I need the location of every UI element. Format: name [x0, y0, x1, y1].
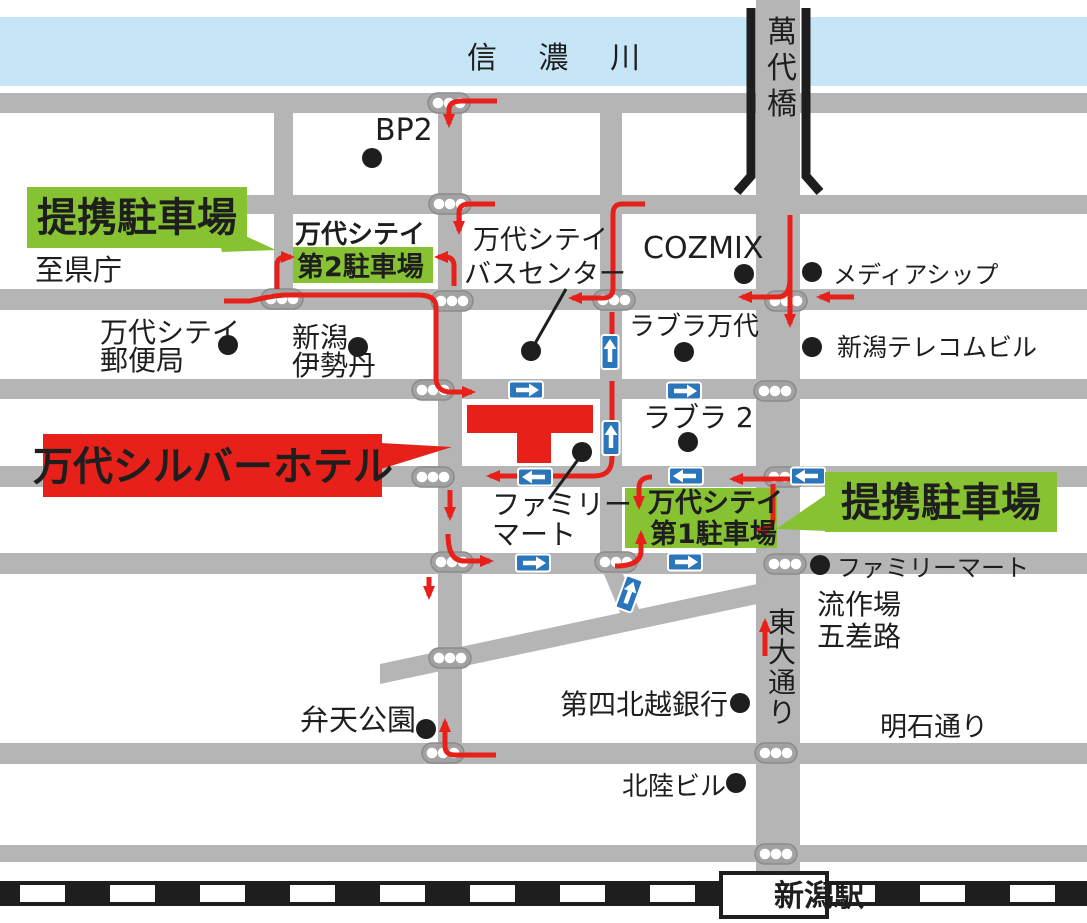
poi-dot-niigata-telecom: [802, 337, 822, 357]
railway-stripe: [1010, 885, 1055, 902]
traffic-light-lamp: [600, 557, 611, 568]
parking-no1-line1: 万代シテイ: [648, 488, 783, 519]
gosaro-label-2: 五差路: [817, 620, 901, 653]
poi-dot-family-mart-east: [810, 555, 830, 575]
railway-stripe: [650, 885, 695, 902]
road-h8: [0, 845, 1087, 862]
poi-dot-hokuriku-bldg: [726, 773, 746, 793]
shinano-river: [810, 17, 1087, 86]
traffic-light-icon: [754, 381, 796, 401]
poi-dot-media-ship: [802, 262, 822, 282]
traffic-light-lamp: [436, 557, 447, 568]
access-map-page: 信 濃 川BP2至県庁万代シテイバスセンターCOZMIXメディアシップ万代シテイ…: [0, 0, 1087, 923]
traffic-light-lamp: [771, 849, 782, 860]
traffic-light-lamp: [417, 385, 428, 396]
poi-label-isetan-2: 伊勢丹: [292, 349, 376, 382]
poi-dot-daishi-bank: [730, 693, 750, 713]
river-label: 信 濃 川: [467, 41, 656, 76]
traffic-light-lamp: [769, 559, 780, 570]
traffic-light-lamp: [791, 559, 802, 570]
partner-parking-label-right: 提携駐車場: [841, 480, 1041, 526]
traffic-light-lamp: [445, 199, 456, 210]
poi-label-cozmix: COZMIX: [643, 231, 763, 266]
hotel-building: [467, 405, 593, 433]
traffic-light-lamp: [427, 748, 438, 759]
poi-label-bus-center-1: 万代シテイ: [473, 225, 608, 256]
traffic-light-icon: [764, 554, 806, 574]
traffic-light-icon: [412, 467, 454, 487]
traffic-light-lamp: [760, 849, 771, 860]
traffic-light-lamp: [771, 748, 782, 759]
traffic-light-lamp: [770, 386, 781, 397]
higashi-odori-label-char: 大: [768, 636, 796, 669]
railway-stripe: [110, 885, 155, 902]
poi-label-media-ship: メディアシップ: [833, 261, 998, 289]
traffic-light-lamp: [760, 748, 771, 759]
traffic-light-lamp: [782, 849, 793, 860]
traffic-light-icon: [755, 743, 797, 763]
traffic-light-lamp: [620, 295, 631, 306]
map-canvas: 信 濃 川BP2至県庁万代シテイバスセンターCOZMIXメディアシップ万代シテイ…: [0, 0, 1087, 923]
to-prefecture-label: 至県庁: [35, 253, 122, 287]
poi-label-bus-center-2: バスセンター: [464, 259, 626, 290]
poi-label-lovela-bandai: ラブラ万代: [629, 312, 759, 342]
poi-dot-lovela-bandai: [674, 342, 694, 362]
poi-label-telecom: 新潟テレコムビル: [837, 333, 1037, 362]
higashi-odori-label-char: り: [768, 696, 796, 729]
poi-label-post-office-2: 郵便局: [100, 344, 184, 377]
poi-label-family-mart-1: ファミリー: [492, 488, 632, 521]
bridge-label-char: 橋: [767, 87, 797, 122]
road-h1: [0, 93, 1087, 113]
poi-dot-bus-center: [521, 341, 541, 361]
one-way-arrow-icon: [509, 382, 543, 399]
bridge-label-char: 萬: [767, 15, 797, 50]
one-way-arrow-icon: [602, 335, 619, 369]
one-way-arrow-icon: [791, 468, 825, 485]
one-way-arrow-icon: [516, 555, 550, 572]
traffic-light-lamp: [792, 296, 803, 307]
railway-stripe: [470, 885, 515, 902]
poi-dot-lovela-2: [678, 432, 698, 452]
poi-label-benten-park: 弁天公園: [300, 703, 416, 737]
traffic-light-lamp: [782, 748, 793, 759]
traffic-light-lamp: [433, 98, 444, 109]
higashi-odori-label-char: 東: [768, 606, 796, 639]
traffic-light-lamp: [759, 386, 770, 397]
poi-label-lovela-2: ラブラ 2: [643, 401, 754, 434]
bridge-label-char: 代: [767, 51, 797, 86]
gosaro-label-1: 流作場: [817, 588, 901, 621]
railway-stripe: [290, 885, 335, 902]
poi-label-family-mart-east: ファミリーマート: [837, 554, 1029, 582]
poi-dot-benten-park: [416, 719, 436, 739]
traffic-light-lamp: [780, 559, 791, 570]
railway-stripe: [20, 885, 65, 902]
parking-no2-line1: 万代シテイ: [295, 220, 425, 250]
traffic-light-lamp: [434, 199, 445, 210]
poi-label-bp2: BP2: [375, 113, 433, 148]
traffic-light-lamp: [456, 653, 467, 664]
poi-dot-family-mart-hotel: [572, 442, 592, 462]
one-way-arrow-icon: [518, 469, 552, 486]
road-h3: [0, 289, 1087, 310]
one-way-arrow-icon: [668, 554, 702, 571]
partner-parking-label-left: 提携駐車場: [37, 195, 237, 241]
traffic-light-icon: [429, 648, 471, 668]
traffic-light-icon: [755, 844, 797, 864]
poi-label-daishi-bank: 第四北越銀行: [560, 688, 728, 721]
hotel-label: 万代シルバーホテル: [33, 444, 393, 490]
poi-label-hokuriku-bldg: 北陸ビル: [622, 772, 726, 802]
traffic-light-lamp: [417, 472, 428, 483]
parking-no2-line2: 第2駐車場: [297, 251, 424, 283]
railway-stripe: [380, 885, 425, 902]
hotel-building: [517, 432, 551, 463]
traffic-light-lamp: [434, 653, 445, 664]
road-h7: [0, 743, 1087, 764]
one-way-arrow-icon: [603, 421, 620, 455]
traffic-light-lamp: [439, 472, 450, 483]
traffic-light-lamp: [458, 296, 469, 307]
poi-label-family-mart-2: マート: [492, 518, 576, 551]
railway-stripe: [920, 885, 965, 902]
traffic-light-lamp: [781, 386, 792, 397]
railway-stripe: [200, 885, 245, 902]
station-label: 新潟駅: [774, 879, 864, 914]
one-way-arrow-icon: [667, 383, 701, 400]
railway-stripe: [560, 885, 605, 902]
higashi-odori-label: 東大通り: [768, 606, 796, 729]
akashi-dori-label: 明石通り: [880, 712, 988, 743]
poi-dot-bp2: [362, 148, 382, 168]
parking-no1-line2: 第1駐車場: [650, 518, 777, 550]
traffic-light-lamp: [428, 472, 439, 483]
one-way-arrow-icon: [669, 468, 703, 485]
traffic-light-lamp: [447, 296, 458, 307]
bridge-label: 萬代橋: [767, 15, 797, 122]
poi-dot-cozmix: [734, 264, 754, 284]
traffic-light-lamp: [445, 653, 456, 664]
higashi-odori-label-char: 通: [768, 666, 796, 699]
